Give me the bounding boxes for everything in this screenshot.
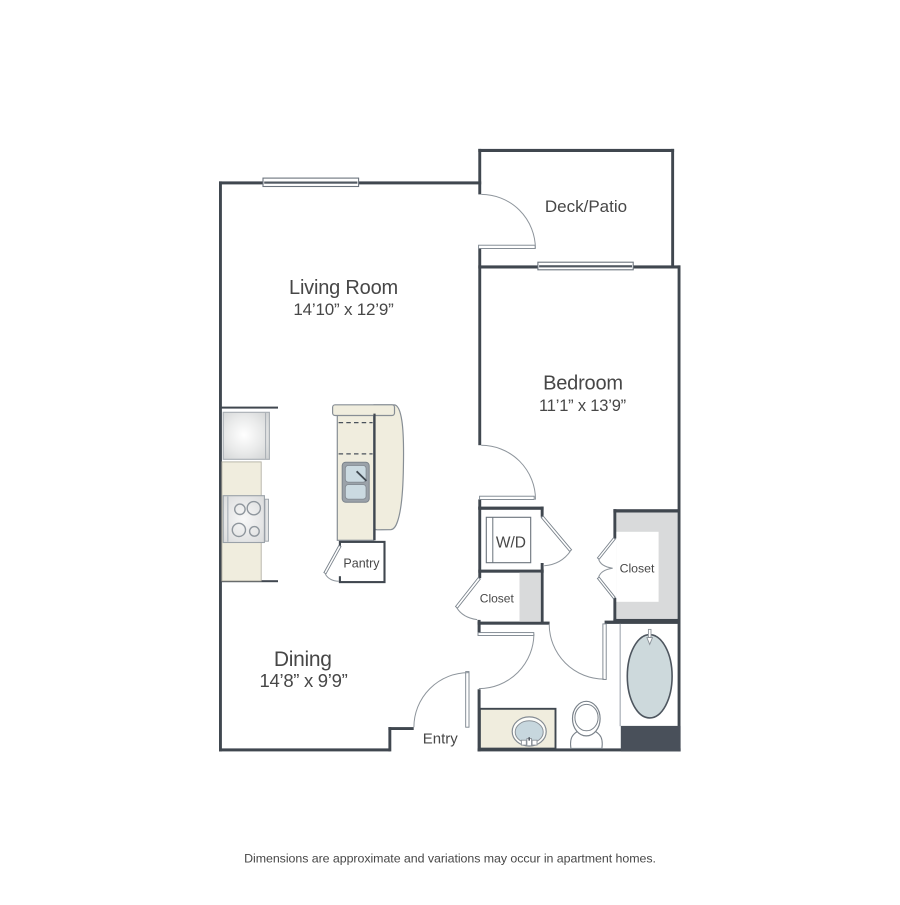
svg-text:14’8” x 9’9”: 14’8” x 9’9” [260,670,348,691]
svg-text:Entry: Entry [423,730,459,747]
svg-text:11’1” x 13’9”: 11’1” x 13’9” [539,397,626,415]
svg-text:W/D: W/D [496,534,526,551]
svg-text:Dimensions are approximate and: Dimensions are approximate and variation… [244,852,656,866]
svg-text:Deck/Patio: Deck/Patio [545,197,627,216]
svg-text:Closet: Closet [480,591,515,605]
svg-text:Closet: Closet [620,561,655,575]
svg-text:14’10” x 12’9”: 14’10” x 12’9” [293,300,394,319]
svg-text:Living Room: Living Room [289,277,398,299]
svg-text:Bedroom: Bedroom [543,373,623,395]
svg-text:Pantry: Pantry [343,557,380,571]
svg-text:Dining: Dining [274,648,332,671]
